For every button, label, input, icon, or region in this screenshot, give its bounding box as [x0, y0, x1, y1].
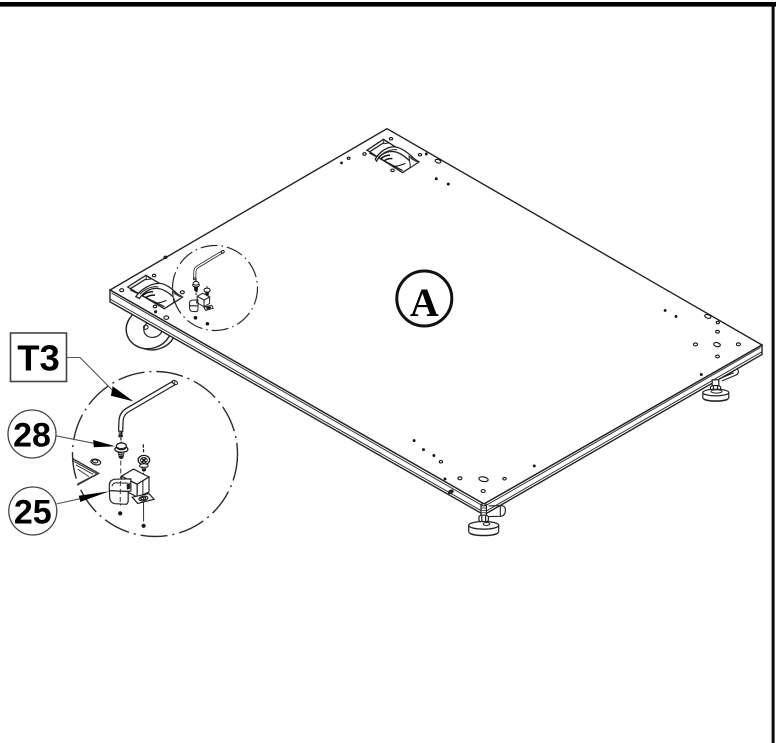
svg-text:25: 25 [14, 493, 52, 531]
svg-text:28: 28 [13, 416, 51, 454]
svg-text:T3: T3 [17, 338, 60, 379]
svg-text:A: A [410, 280, 439, 325]
